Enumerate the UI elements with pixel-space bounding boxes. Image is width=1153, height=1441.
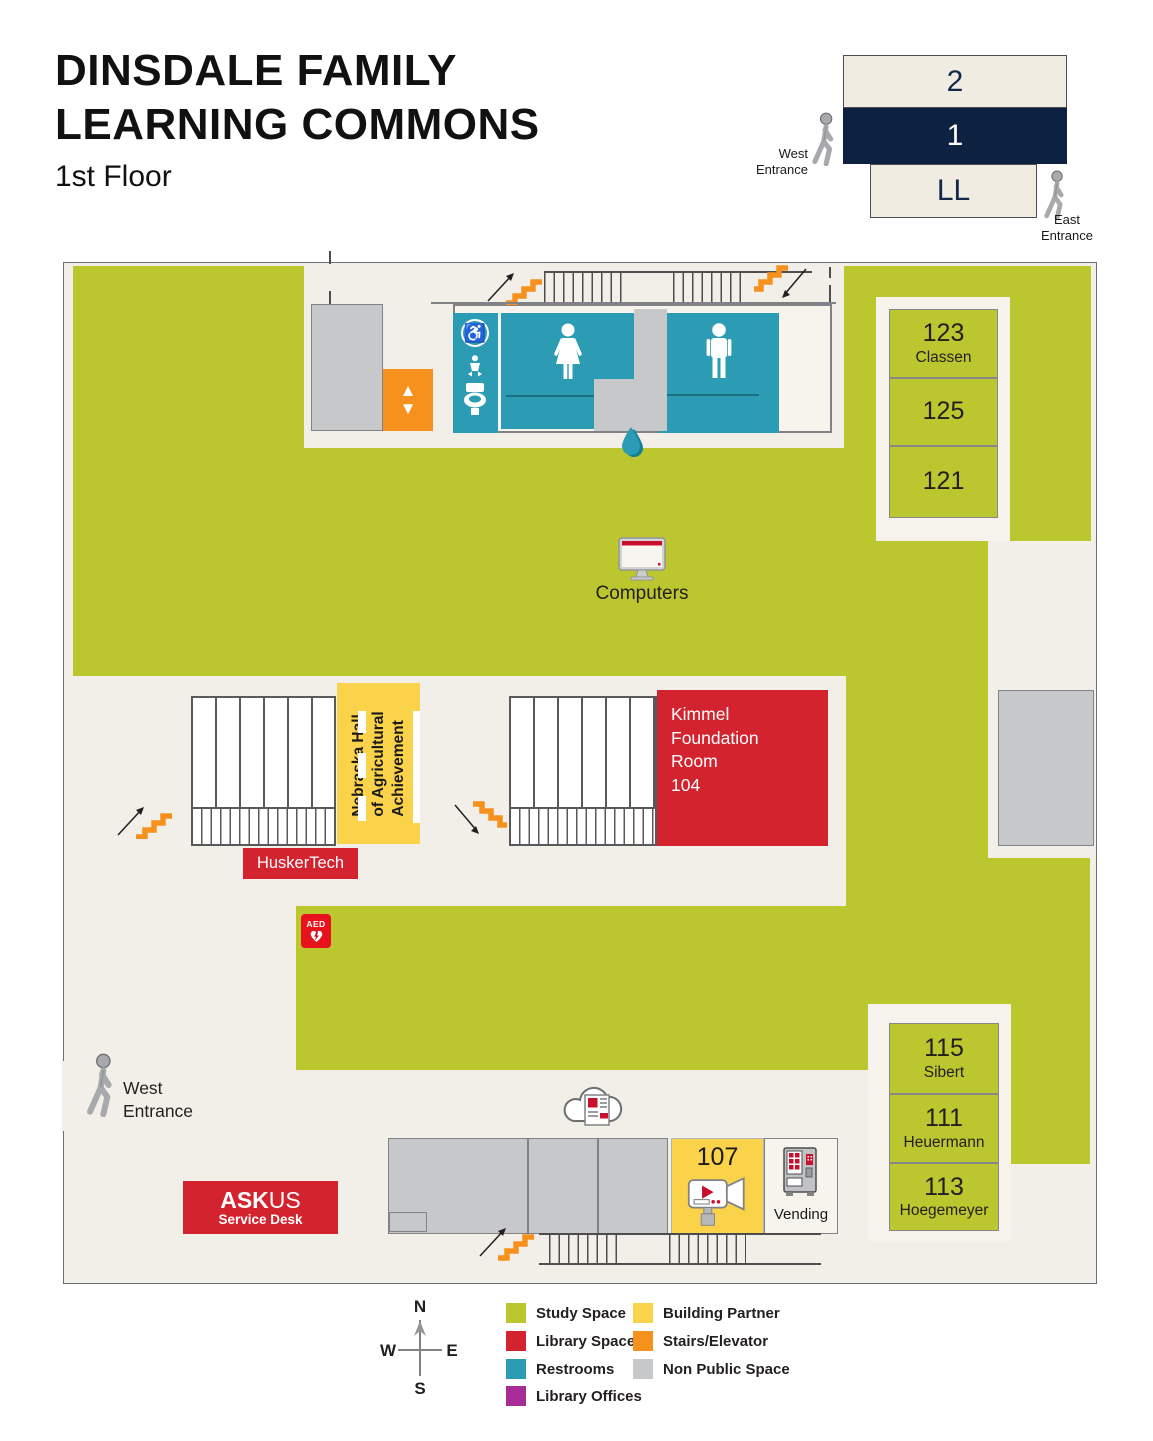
wall-line (667, 394, 759, 396)
room-113-hoegemeyer: 113 Hoegemeyer (889, 1163, 999, 1231)
door-mark (329, 291, 331, 304)
legend-swatch-building-partner (633, 1303, 653, 1323)
nebraska-hall-building-partner: Nebraska Hall of Agricultural Achievemen… (337, 683, 420, 844)
floor-button-1-selected[interactable]: 1 (843, 108, 1067, 164)
video-camera-icon (687, 1173, 749, 1228)
us-label: US (269, 1187, 301, 1213)
stair-treads (669, 1234, 746, 1264)
book-stacks (509, 696, 657, 809)
compass-south: S (414, 1379, 425, 1396)
book-stacks (509, 807, 657, 846)
west-entrance-door-gap (62, 1061, 67, 1131)
east-entrance-selector-label: East Entrance (1034, 212, 1100, 243)
west-entrance-person-icon (810, 112, 840, 166)
room-123-classen: 123 Classen (889, 309, 998, 378)
legend-swatch-library-offices (506, 1386, 526, 1406)
wall-line (431, 302, 836, 304)
west-entrance-person-icon (84, 1053, 120, 1117)
stairs-up-icon (476, 1219, 536, 1261)
corridor (634, 309, 667, 379)
huskertech-label: HuskerTech (243, 848, 358, 879)
elevator-down-arrow: ▼ (400, 400, 417, 418)
legend-swatch-stairs-elevator (633, 1331, 653, 1351)
room-number: 107 (672, 1143, 763, 1172)
stair-treads (549, 1234, 624, 1264)
mens-restroom (659, 313, 779, 433)
wall-line (597, 1139, 599, 1233)
room-115-sibert: 115 Sibert (889, 1023, 999, 1094)
room-number: 115 (924, 1035, 964, 1063)
accessible-icon: ♿ (461, 319, 489, 347)
service-desk-label: Service Desk (218, 1212, 302, 1227)
compass-north: N (414, 1297, 426, 1316)
legend-swatch-restrooms (506, 1359, 526, 1379)
page-title: DINSDALE FAMILYLEARNING COMMONS (55, 44, 540, 151)
room-name: Classen (916, 349, 972, 367)
aed-heart-icon (309, 929, 324, 943)
stair-edge-line (539, 1263, 821, 1265)
room-name: Sibert (924, 1064, 965, 1082)
study-space-region (876, 541, 988, 676)
water-fountain-icon (619, 426, 645, 462)
vending-label: Vending (765, 1206, 837, 1223)
non-public-space (311, 304, 383, 431)
legend-swatch-non-public (633, 1359, 653, 1379)
legend-label: Non Public Space (663, 1361, 790, 1378)
kimmel-room-label: Kimmel Foundation Room 104 (657, 690, 828, 798)
floor-subtitle: 1st Floor (55, 160, 172, 194)
aed-icon: AED (301, 914, 331, 948)
legend-label: Study Space (536, 1305, 626, 1322)
elevator-icon: ▲ ▼ (383, 369, 433, 431)
room-number: 113 (924, 1174, 964, 1202)
vending-area: Vending (764, 1138, 838, 1234)
desk-nook (389, 1212, 427, 1232)
room-121: 121 (889, 446, 998, 518)
legend-label: Restrooms (536, 1361, 614, 1378)
kimmel-foundation-room-104: Kimmel Foundation Room 104 (657, 690, 828, 846)
door-mark (829, 285, 831, 302)
legend-label: Library Space (536, 1333, 635, 1350)
computer-icon (618, 537, 666, 581)
room-name: Hoegemeyer (900, 1202, 989, 1220)
stair-treads (544, 271, 624, 304)
study-space-region (844, 266, 1091, 297)
display-case (358, 711, 366, 733)
west-entrance-selector-label: West Entrance (742, 146, 808, 177)
book-stacks (191, 807, 336, 846)
display-case (358, 796, 366, 821)
compass: N S W E (380, 1296, 460, 1396)
west-entrance-map-label: West Entrance (123, 1077, 193, 1123)
stairs-down-icon (752, 265, 812, 305)
corridor (594, 379, 667, 431)
stair-treads (673, 271, 749, 304)
room-111-heuermann: 111 Heuermann (889, 1094, 999, 1163)
legend-label: Building Partner (663, 1305, 780, 1322)
legend-swatch-library-space (506, 1331, 526, 1351)
floor-plan: ▲ ▼ ♿ (63, 262, 1097, 1284)
compass-east: E (446, 1341, 457, 1360)
study-space-region (73, 266, 304, 448)
legend-label: Library Offices (536, 1388, 642, 1405)
stairs-up-icon (484, 265, 544, 305)
restroom-icon-strip: ♿ (453, 313, 498, 433)
stairs-down-icon (449, 801, 509, 841)
room-number: 125 (923, 398, 965, 426)
legend-label: Stairs/Elevator (663, 1333, 768, 1350)
display-case (413, 711, 420, 823)
study-space-region (296, 1004, 868, 1070)
room-number: 123 (923, 320, 965, 348)
door-mark (829, 267, 831, 278)
study-space-region (296, 906, 988, 1004)
floor-button-2[interactable]: 2 (843, 55, 1067, 108)
room-number: 111 (925, 1105, 963, 1133)
room-125: 125 (889, 378, 998, 446)
study-space-region (73, 448, 876, 676)
male-icon (699, 323, 739, 385)
room-number: 121 (923, 468, 965, 496)
ask-label: ASK (220, 1187, 269, 1213)
toilet-icon (463, 383, 487, 417)
elevator-up-arrow: ▲ (400, 382, 417, 400)
study-space-region (844, 297, 876, 541)
display-case (358, 753, 366, 778)
baby-changing-icon (464, 355, 486, 377)
vending-machine-icon (783, 1147, 819, 1199)
aed-label: AED (306, 919, 325, 929)
room-name: Heuermann (904, 1134, 985, 1152)
book-stacks (191, 696, 336, 809)
askus-service-desk: ASKUS Service Desk (183, 1181, 338, 1234)
legend-swatch-study-space (506, 1303, 526, 1323)
room-107-building-partner: 107 (671, 1138, 764, 1234)
compass-west: W (380, 1341, 397, 1360)
non-public-space (998, 690, 1094, 846)
floor-button-ll[interactable]: LL (870, 164, 1037, 218)
computers-label: Computers (582, 583, 702, 605)
stairs-up-icon (114, 799, 174, 839)
floor-map-poster: DINSDALE FAMILYLEARNING COMMONS 1st Floo… (0, 0, 1153, 1441)
female-icon (548, 323, 588, 385)
door-mark (329, 251, 331, 264)
cloud-print-icon (559, 1079, 631, 1135)
study-space-region (1011, 1004, 1090, 1164)
study-space-region (1010, 297, 1091, 541)
